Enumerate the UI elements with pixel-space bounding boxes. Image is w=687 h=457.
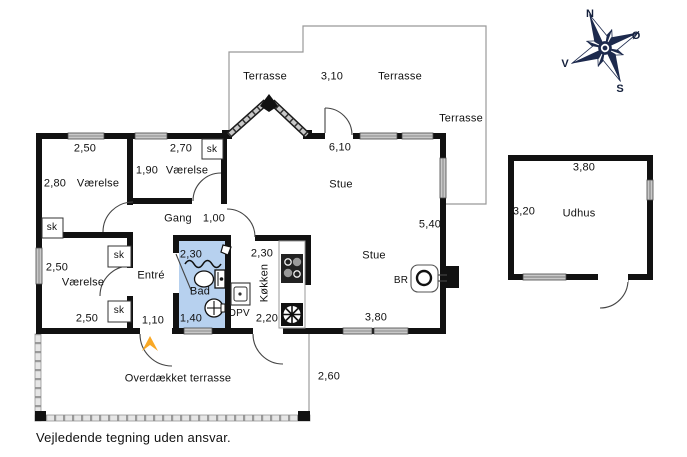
closet-label: sk [114,251,124,261]
interior-walls [36,133,311,334]
window [36,248,42,284]
compass-south-label: S [616,83,623,95]
entrance-arrow-icon [142,336,158,351]
closet-label: sk [47,223,57,233]
door-arc-kitchen-terrace [253,334,283,364]
compass-north-label: N [586,8,594,20]
door-arc-bedroom-n [193,173,221,201]
room-label-entry: Entré [137,271,164,282]
window [647,180,653,200]
room-label-terrace-nw: Terrasse [243,72,287,83]
dim-bath-width: 2,30 [180,250,202,261]
dim-terrace-width: 3,10 [321,72,343,83]
dim-living-north-width: 6,10 [329,143,351,154]
room-label-kitchen: Køkken [260,264,271,303]
fixture-label-dishwasher: OPV [228,309,250,319]
compass-rose-icon: N Ø S V [556,0,654,97]
window [402,133,433,139]
dim-hall-door-width: 1,00 [203,214,225,225]
room-label-bath: Bad [190,287,210,298]
window [343,328,372,334]
room-label-living-south: Stue [362,251,385,262]
room-label-terrace-n: Terrasse [378,72,422,83]
dim-covered-terrace-depth: 2,60 [318,372,340,383]
room-label-bedroom-sw: Værelse [62,278,104,289]
room-label-terrace-e: Terrasse [439,114,483,125]
door-arc-hall-living [227,209,255,237]
shed-door-opening [598,273,628,282]
fixture-label-wood-stove: BR [394,276,408,286]
door-arc-entry [140,334,172,366]
dim-bedroom-n-width: 2,70 [170,144,192,155]
floor-plan-drawing: N Ø S V [0,0,687,457]
extractor-fan-icon [281,303,303,326]
cooktop-icon [281,254,303,283]
kitchen-sink-icon [231,283,250,305]
dim-shed-depth: 3,20 [513,207,535,218]
room-label-bedroom-n: Værelse [166,166,208,177]
dim-living-east-depth: 5,40 [419,220,441,231]
closet-label: sk [207,145,217,155]
window [360,133,397,139]
room-label-hall: Gang [164,214,192,225]
window [135,133,167,139]
door-arc-shed [600,280,628,308]
room-label-living-main: Stue [329,180,352,191]
disclaimer-note: Vejledende tegning uden ansvar. [36,431,231,444]
window [184,328,212,334]
terrace-post [298,411,310,421]
compass-west-label: V [561,58,569,70]
window [374,328,408,334]
dim-bedroom-sw-depth: 2,50 [46,263,68,274]
dim-bath-door-width: 1,40 [180,314,202,325]
dim-bedroom-n-depth: 1,90 [136,166,158,177]
door-arc-bedroom-nw [103,202,133,232]
dim-bedroom-nw-depth: 2,80 [44,179,66,190]
dim-living-south-width: 3,80 [365,313,387,324]
dim-shed-width: 3,80 [573,163,595,174]
dim-kitchen-depth: 2,30 [251,249,273,260]
chimney [446,266,459,288]
door-arc-bay [325,108,352,135]
bay-window [229,94,307,135]
window [440,158,446,198]
compass-east-label: Ø [632,30,641,42]
dim-bedroom-sw-width: 2,50 [76,314,98,325]
room-label-covered-terrace: Overdækket terrasse [125,374,232,385]
window [523,274,566,280]
terrace-post [35,411,46,421]
dim-kitchen-door-width: 2,20 [256,314,278,325]
room-label-shed: Udhus [563,209,596,220]
dim-entry-door-width: 1,10 [142,316,164,327]
door-arc-bedroom-sw [100,266,130,296]
floor-plan-page: N Ø S V Terrasse 3,10 Terrasse Terrasse … [0,0,687,457]
wood-stove-icon [411,265,459,292]
dim-bedroom-nw-width: 2,50 [74,144,96,155]
room-label-bedroom-nw: Værelse [77,179,119,190]
closet-label: sk [114,306,124,316]
window [68,133,104,139]
